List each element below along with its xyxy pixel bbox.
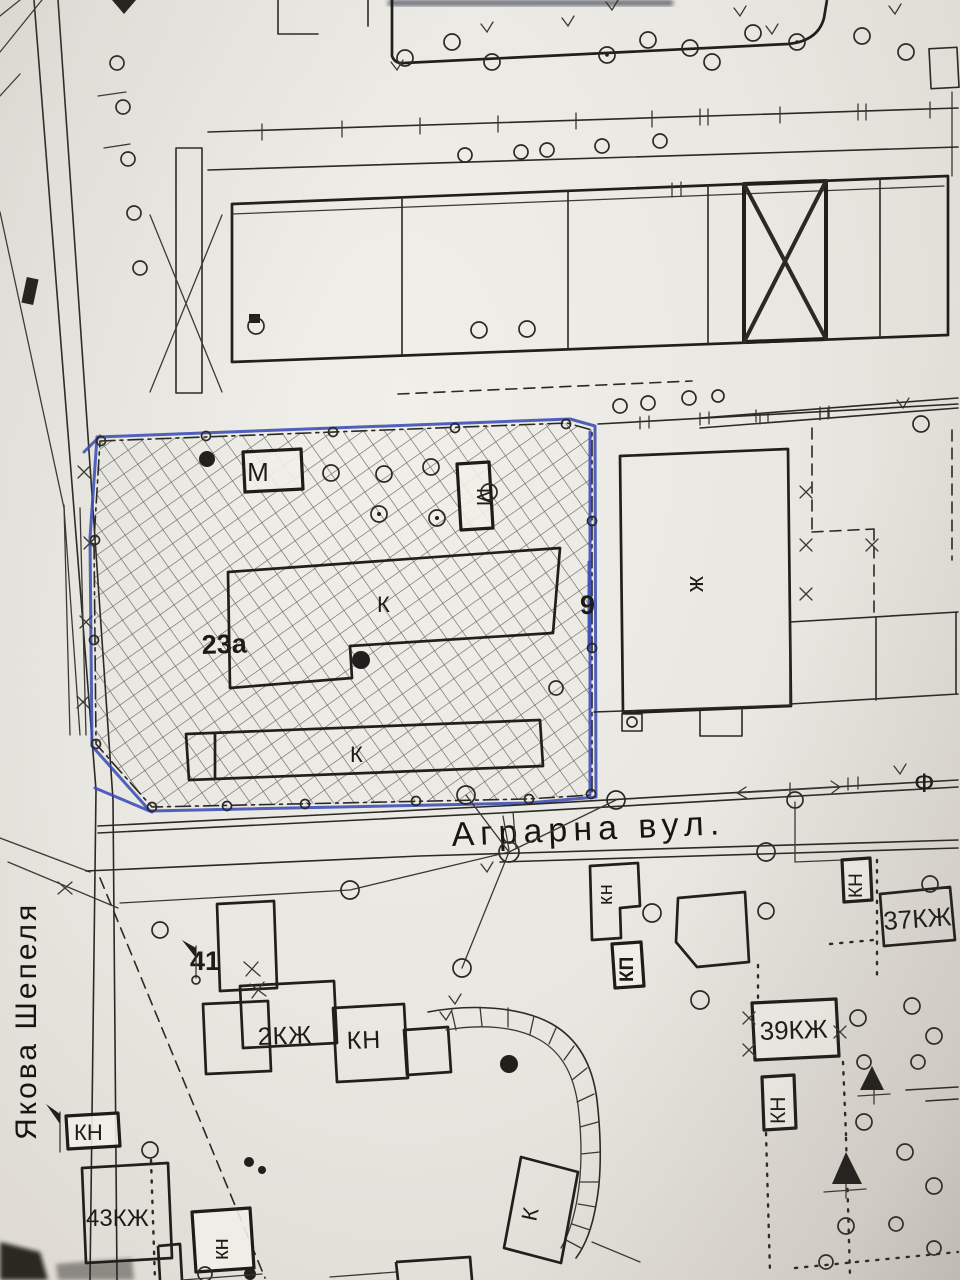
kn-center-label: кн: [595, 883, 617, 905]
street-label-yakova-shepelya: Якова Шепеля: [10, 902, 43, 1140]
edge-number-9: 9: [580, 590, 595, 620]
m-box-side-label: М: [472, 488, 497, 506]
zh-letter: ж: [684, 576, 711, 592]
house-kn-label: КН: [346, 1026, 382, 1055]
house-2kzh-label: 2КЖ: [257, 1021, 313, 1051]
f-symbol: Ф: [914, 768, 935, 798]
kp-label: КП: [617, 957, 638, 982]
house-cluster-left: 41 2КЖ КН: [182, 901, 451, 1082]
subject-parcel: 23а К К М М 9: [64, 419, 597, 812]
parcel-number-label: 23а: [201, 628, 248, 660]
house-37kzh-label: 37КЖ: [882, 901, 952, 936]
kn-bottom-label: кн: [208, 1238, 233, 1260]
upper-street: [208, 102, 958, 170]
map-canvas: 23а К К М М 9 ж Аграрна вул.: [0, 0, 960, 1280]
curved-slope-feature: К: [428, 1007, 640, 1263]
building-letter-k-upper: К: [377, 592, 390, 617]
garage-row: [150, 148, 958, 432]
south-area: 41 2КЖ КН кн КП КН 37КЖ 39КЖ: [46, 858, 958, 1280]
kn-left-label: КН: [74, 1120, 103, 1145]
building-letter-k-lower: К: [350, 742, 363, 767]
garage-dividers: [402, 179, 880, 355]
benchmark-triangle-icon: [832, 1152, 862, 1184]
house-cluster-right: КН 37КЖ 39КЖ КН: [743, 858, 958, 1275]
k-slanted-label: К: [516, 1205, 543, 1223]
roadside-trees: [110, 56, 147, 275]
house-43kzh-label: 43КЖ: [86, 1205, 149, 1232]
scanned-cadastral-map: 23а К К М М 9 ж Аграрна вул.: [0, 0, 960, 1280]
striped-building: [676, 892, 749, 967]
m-box-label: М: [247, 457, 269, 487]
street-ticks: [262, 102, 930, 140]
house-cluster-bottom-left: КН 43КЖ кн: [46, 1104, 266, 1280]
kn-right-upper-label: КН: [846, 873, 867, 898]
house-cluster-center: кн КП: [590, 863, 774, 1009]
tree-icon: [397, 25, 914, 70]
house-39kzh-label: 39КЖ: [759, 1014, 828, 1046]
parcel-hatch-area: [94, 423, 592, 807]
right-neighbour-area: ж: [594, 404, 958, 736]
kn-right-lower-label: КН: [767, 1097, 790, 1124]
